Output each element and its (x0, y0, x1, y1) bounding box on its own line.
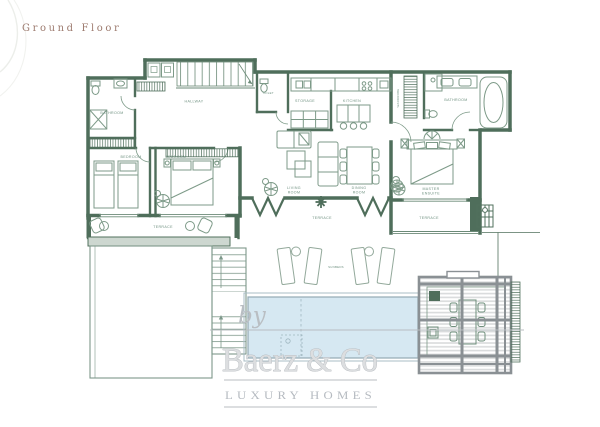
garden-court (90, 246, 212, 378)
room-label-living-1: LIVING (287, 186, 301, 190)
garden-edge-lines (482, 233, 540, 279)
room-label-dining-2: ROOM (353, 191, 366, 195)
master-furniture (393, 131, 465, 195)
pergola (419, 272, 520, 374)
dining-furniture (340, 147, 403, 192)
corner-decoration (0, 0, 26, 96)
room-label-dining-1: DINING (352, 186, 367, 190)
bedroom-left-furniture (94, 161, 138, 208)
room-label-toilet: TOILET (262, 91, 274, 95)
page-title: Ground Floor (22, 23, 121, 34)
floorplan-page: Ground Floor (0, 0, 600, 427)
staircase-lower (212, 248, 246, 354)
watermark-by: by (238, 303, 267, 329)
room-label-kitchen: KITCHEN (343, 99, 361, 103)
room-label-terrace-left: TERRACE (153, 225, 173, 229)
room-label-bedroom-left: BEDROOM (120, 155, 141, 159)
room-label-bathroom-right: BATHROOM (444, 98, 467, 102)
bedroom-mid-furniture (155, 159, 221, 208)
watermark-tagline: LUXURY HOMES (225, 388, 376, 402)
room-label-storage: STORAGE (295, 99, 315, 103)
room-label-hallway: HALLWAY (185, 100, 204, 104)
room-label-sunbeds: SUNBEDS (328, 265, 344, 269)
floor-plan-canvas: Ground Floor (0, 0, 600, 427)
pergola-hedge-strip (511, 282, 520, 362)
room-label-bedroom-mid: BEDROOM (165, 155, 186, 159)
watermark-brand: Baerz & Co (222, 342, 378, 379)
room-label-master-2: ENSUITE (422, 192, 440, 196)
room-label-terrace-center: TERRACE (312, 216, 332, 220)
railing-band (88, 237, 230, 246)
room-label-master-1: MASTER (422, 187, 439, 191)
storage-shelves (291, 111, 328, 128)
bathroom-left-fixtures (90, 79, 127, 129)
room-label-wardrobe: WARDROBE (396, 89, 400, 108)
terrace-left-furniture (89, 217, 213, 234)
kitchen-fixtures (291, 78, 391, 129)
room-label-terrace-right: TERRACE (419, 216, 439, 220)
room-label-bathroom-left: BATHROOM (100, 111, 123, 115)
room-label-living-2: ROOM (288, 191, 301, 195)
